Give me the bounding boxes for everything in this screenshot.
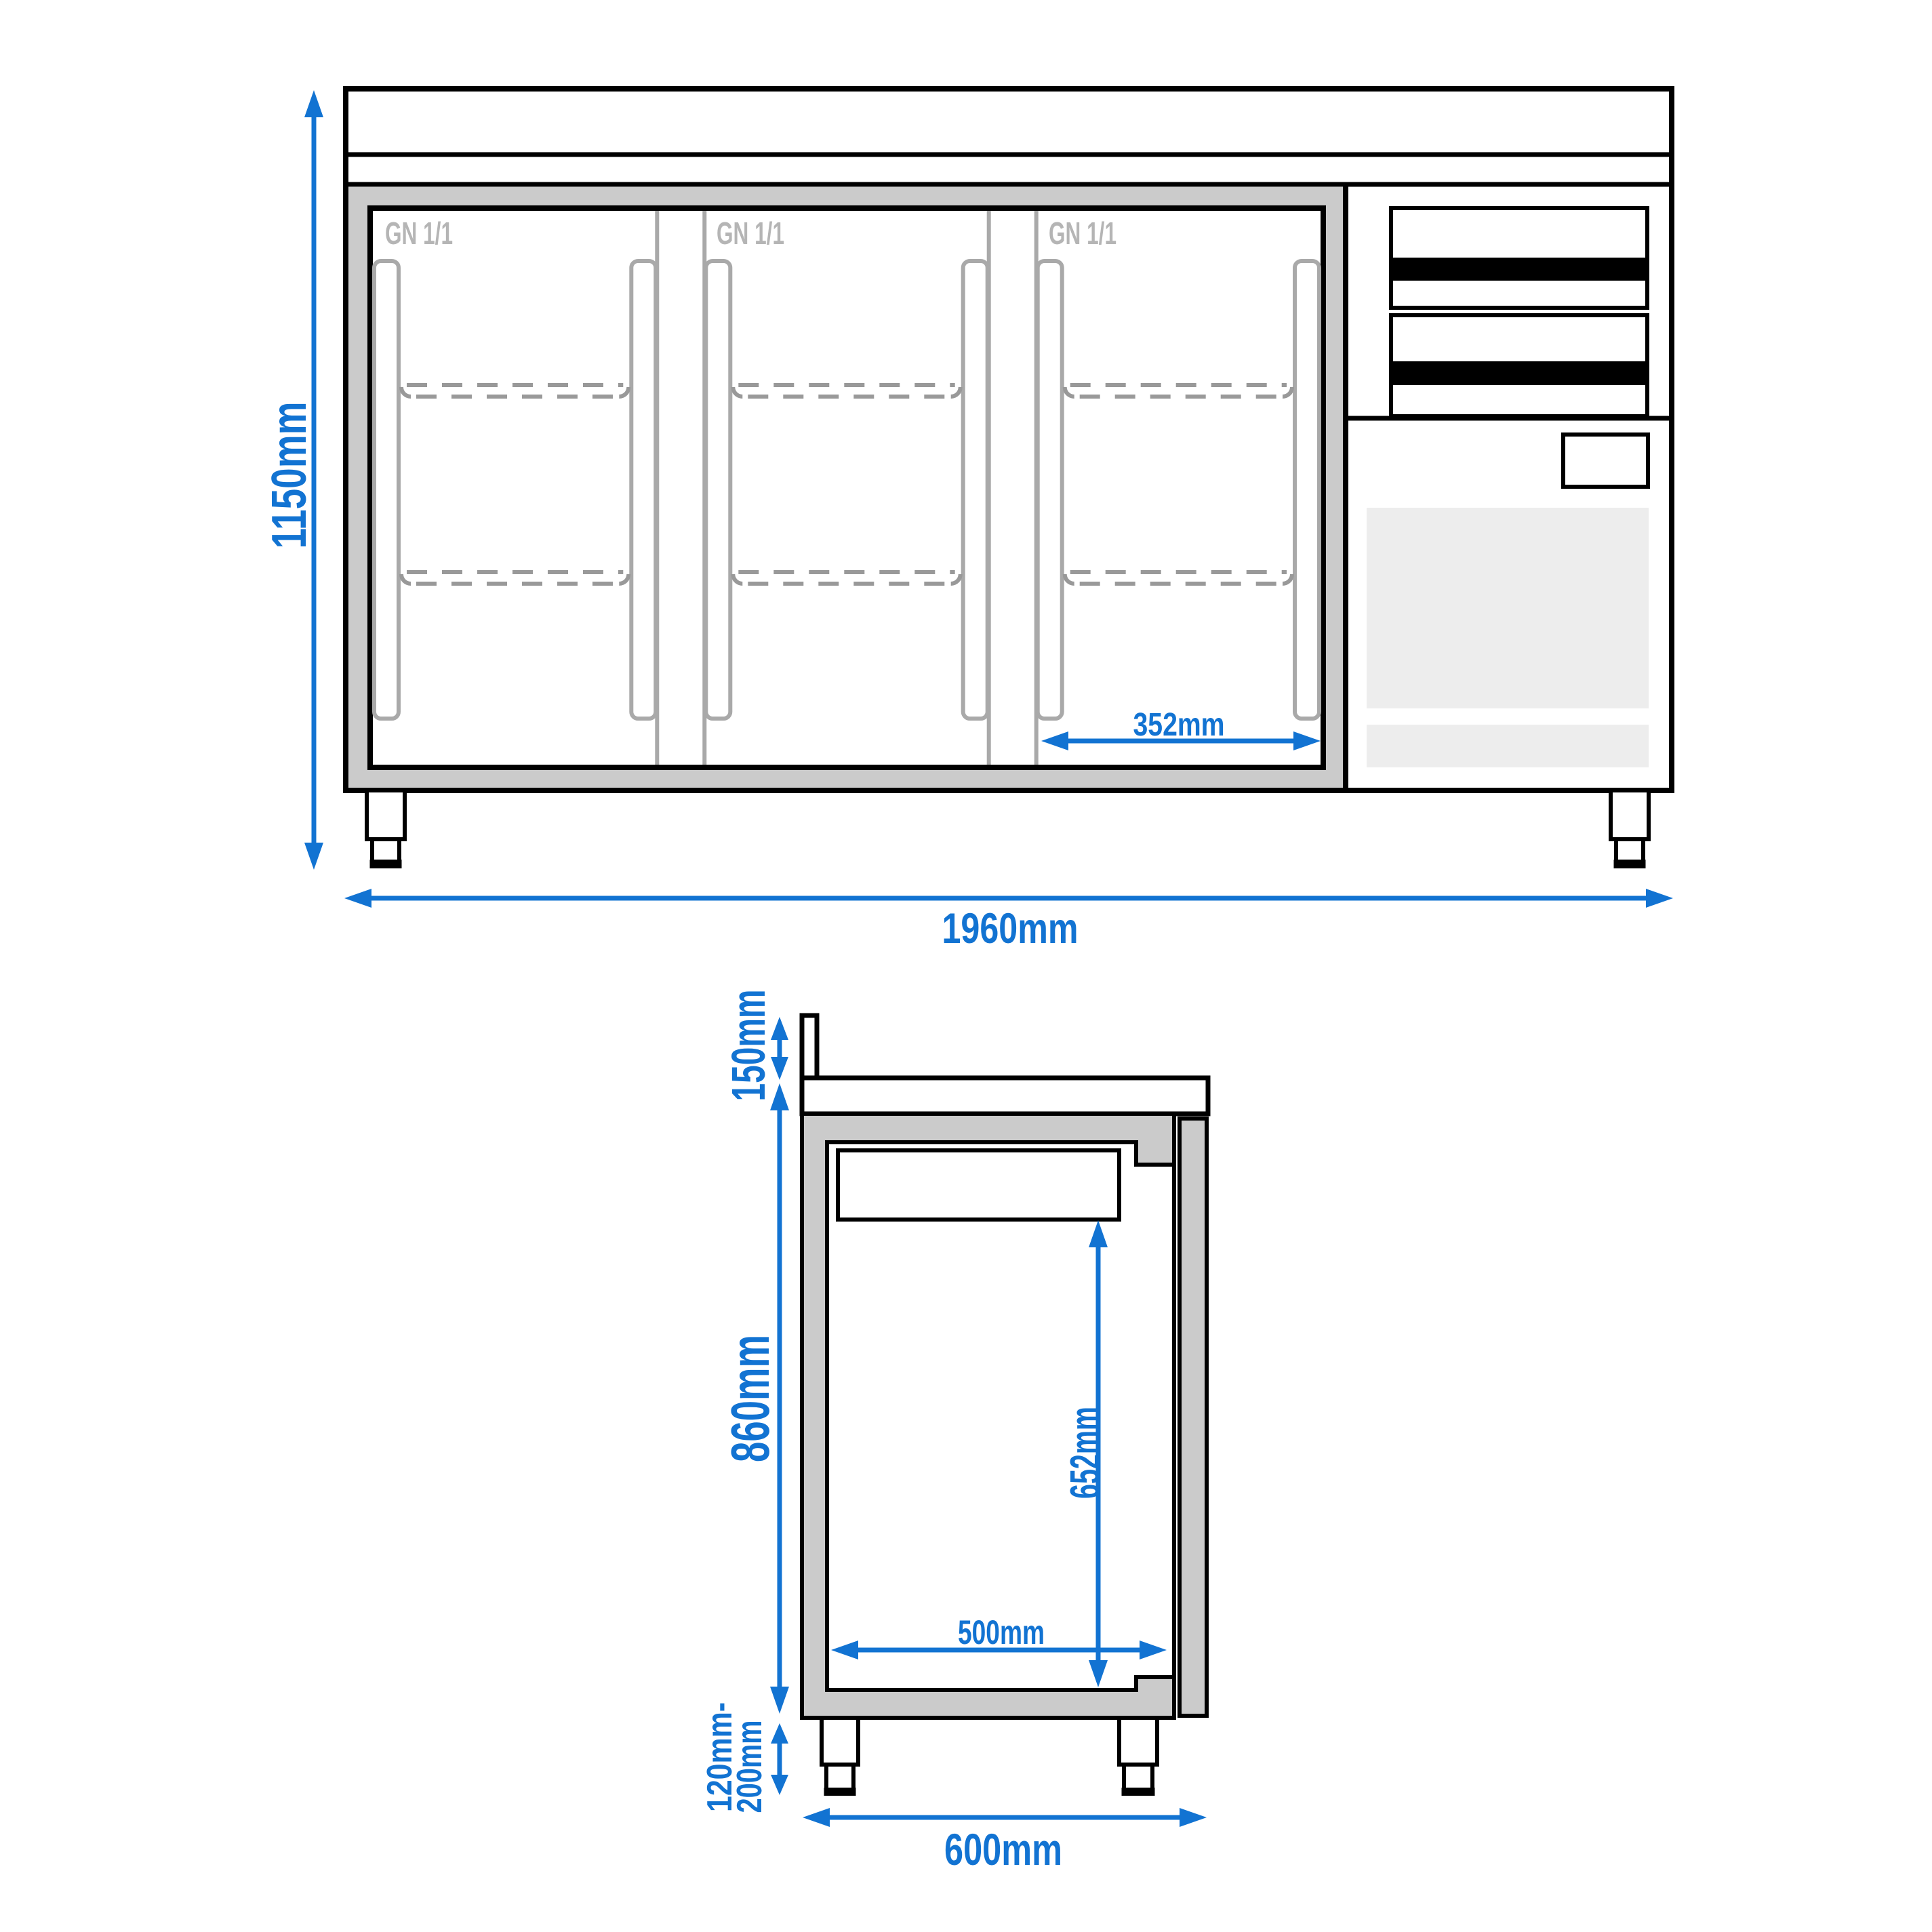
svg-text:GN 1/1: GN 1/1 [385, 216, 453, 251]
svg-text:200mm: 200mm [730, 1720, 769, 1813]
svg-text:860mm: 860mm [720, 1335, 780, 1462]
svg-text:150mm: 150mm [722, 990, 775, 1102]
svg-text:GN 1/1: GN 1/1 [717, 216, 784, 251]
svg-text:352mm: 352mm [1133, 707, 1225, 743]
svg-text:1150mm: 1150mm [262, 402, 317, 549]
svg-text:GN 1/1: GN 1/1 [1049, 216, 1116, 251]
svg-text:600mm: 600mm [944, 1824, 1062, 1874]
svg-text:652mm: 652mm [1062, 1407, 1109, 1499]
svg-text:500mm: 500mm [958, 1613, 1045, 1651]
svg-text:1960mm: 1960mm [942, 905, 1079, 952]
